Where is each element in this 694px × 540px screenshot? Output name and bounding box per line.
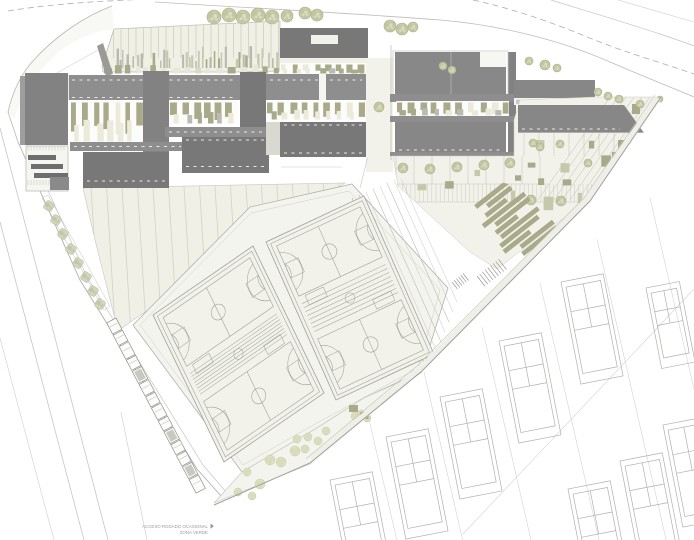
svg-text:ACCESO RODADO OCASIONAL: ACCESO RODADO OCASIONAL xyxy=(142,524,208,529)
svg-text:ZONA VERDE: ZONA VERDE xyxy=(180,530,208,535)
